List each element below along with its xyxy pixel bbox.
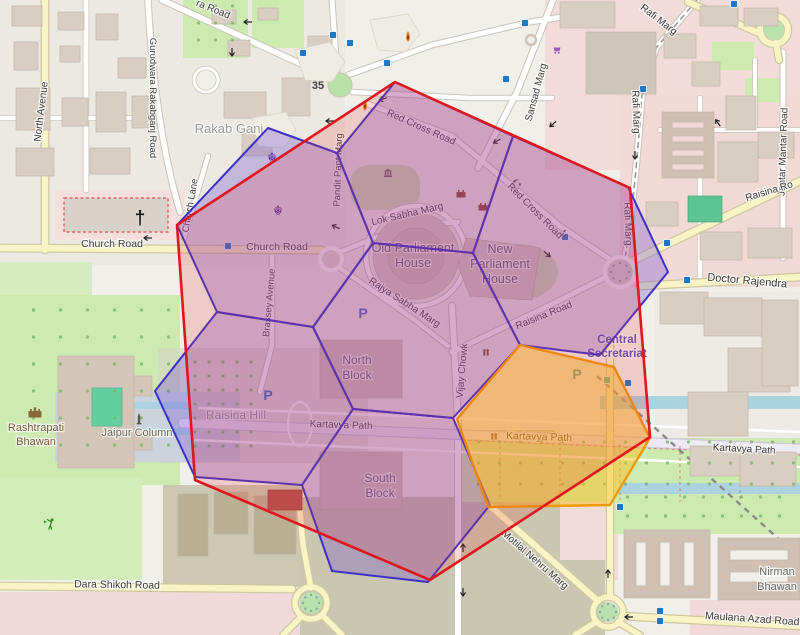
- tree-dot: [771, 440, 774, 443]
- roundabout-dot: [612, 605, 614, 607]
- roundabout-dot: [607, 603, 609, 605]
- tree-dot: [778, 495, 781, 498]
- roundabout-dot: [315, 607, 317, 609]
- tree-dot: [140, 308, 143, 311]
- tree-dot: [59, 308, 62, 311]
- tree-dot: [645, 495, 648, 498]
- tree-dot: [626, 514, 629, 517]
- tree-dot: [683, 495, 686, 498]
- tree-dot: [645, 514, 648, 517]
- building-label: Bhawan: [757, 581, 797, 593]
- tree-dot: [778, 514, 781, 517]
- tree-dot: [167, 335, 170, 338]
- road-label: Gurudwara Rakabganj Road: [147, 38, 158, 158]
- traffic-signal-icon: [684, 277, 691, 284]
- tree-dot: [708, 482, 711, 485]
- road-label: Church Road: [81, 238, 143, 250]
- amenity-label: Bhawan: [16, 436, 56, 448]
- tree-dot: [140, 416, 143, 419]
- tree-dot: [792, 482, 795, 485]
- tree-dot: [140, 443, 143, 446]
- roundabout-dot: [304, 607, 306, 609]
- tree-dot: [666, 461, 669, 464]
- tree-dot: [729, 482, 732, 485]
- roundabout-dot: [310, 594, 312, 596]
- traffic-signal-icon: [657, 618, 664, 625]
- traffic-signal-icon: [347, 40, 354, 47]
- tree-dot: [750, 482, 753, 485]
- tree-dot: [750, 440, 753, 443]
- tree-dot: [231, 21, 234, 24]
- tree-dot: [86, 308, 89, 311]
- tree-dot: [750, 461, 753, 464]
- tree-dot: [666, 482, 669, 485]
- roundabout-dot: [612, 616, 614, 618]
- tree-dot: [86, 443, 89, 446]
- tree-dot: [140, 362, 143, 365]
- tree-dot: [113, 362, 116, 365]
- traffic-signal-icon: [657, 608, 664, 615]
- traffic-signal-icon: [664, 240, 671, 247]
- traffic-signal-icon: [617, 504, 624, 511]
- tree-dot: [231, 38, 234, 41]
- tree-dot: [721, 495, 724, 498]
- tree-dot: [59, 416, 62, 419]
- tree-dot: [140, 389, 143, 392]
- tree-dot: [113, 443, 116, 446]
- traffic-signal-icon: [731, 1, 738, 8]
- road-label: Rafi Marg: [629, 90, 642, 134]
- road-label: Dara Shikoh Road: [74, 578, 160, 591]
- tree-dot: [771, 461, 774, 464]
- tree-dot: [59, 443, 62, 446]
- tree-dot: [740, 495, 743, 498]
- tree-dot: [702, 514, 705, 517]
- tree-dot: [32, 389, 35, 392]
- roundabout-dot: [601, 616, 603, 618]
- tree-dot: [167, 443, 170, 446]
- building-label: Nirman: [759, 566, 794, 578]
- tree-dot: [32, 362, 35, 365]
- place-label: Rakab Ganj: [195, 121, 264, 136]
- traffic-signal-icon: [522, 20, 529, 27]
- roundabout-dot: [615, 611, 617, 613]
- tree-dot: [771, 482, 774, 485]
- tree-dot: [113, 335, 116, 338]
- tree-dot: [214, 38, 217, 41]
- tree-dot: [113, 308, 116, 311]
- tree-dot: [626, 495, 629, 498]
- base-map: PPP☬☬†☪35 North AvenueGurudwara Rakabgan…: [0, 0, 800, 635]
- tree-dot: [702, 495, 705, 498]
- tree-dot: [683, 514, 686, 517]
- tree-dot: [664, 495, 667, 498]
- roundabout-dot: [310, 610, 312, 612]
- roundabout-dot: [302, 602, 304, 604]
- tree-dot: [666, 440, 669, 443]
- tree-dot: [197, 21, 200, 24]
- tree-dot: [759, 495, 762, 498]
- tree-dot: [59, 362, 62, 365]
- map-viewport[interactable]: PPP☬☬†☪35 North AvenueGurudwara Rakabgan…: [0, 0, 800, 635]
- tree-dot: [86, 362, 89, 365]
- tree-dot: [32, 308, 35, 311]
- tree-dot: [167, 362, 170, 365]
- tree-dot: [721, 514, 724, 517]
- roundabout-dot: [601, 605, 603, 607]
- tree-dot: [86, 416, 89, 419]
- tree-dot: [59, 389, 62, 392]
- tree-dot: [113, 389, 116, 392]
- traffic-signal-icon: [384, 60, 391, 67]
- tree-dot: [214, 21, 217, 24]
- tree-dot: [86, 389, 89, 392]
- traffic-signal-icon: [330, 32, 337, 39]
- tree-dot: [687, 440, 690, 443]
- tree-dot: [197, 38, 200, 41]
- roundabout-dot: [315, 596, 317, 598]
- tree-dot: [645, 461, 648, 464]
- roundabout-dot: [318, 602, 320, 604]
- tree-dot: [59, 335, 62, 338]
- tree-dot: [792, 440, 795, 443]
- church-cross-icon: †: [135, 208, 146, 229]
- hindu-temple-om-icon: 35: [312, 80, 324, 92]
- tree-dot: [792, 461, 795, 464]
- tree-dot: [687, 461, 690, 464]
- traffic-signal-icon: [503, 76, 510, 83]
- tree-dot: [167, 308, 170, 311]
- tree-dot: [86, 335, 89, 338]
- traffic-signal-icon: [300, 50, 307, 57]
- roundabout-dot: [304, 596, 306, 598]
- tree-dot: [231, 4, 234, 7]
- amenity-label: Rashtrapati: [8, 422, 64, 434]
- roundabout-dot: [599, 611, 601, 613]
- tree-dot: [645, 482, 648, 485]
- tree-dot: [759, 514, 762, 517]
- tree-dot: [113, 416, 116, 419]
- tree-dot: [140, 335, 143, 338]
- tree-dot: [687, 482, 690, 485]
- tree-dot: [32, 335, 35, 338]
- tree-dot: [708, 461, 711, 464]
- tree-dot: [740, 514, 743, 517]
- tree-dot: [708, 440, 711, 443]
- amenity-label: Jaipur Column: [102, 427, 173, 439]
- tree-dot: [664, 514, 667, 517]
- roundabout-dot: [607, 619, 609, 621]
- tree-dot: [729, 461, 732, 464]
